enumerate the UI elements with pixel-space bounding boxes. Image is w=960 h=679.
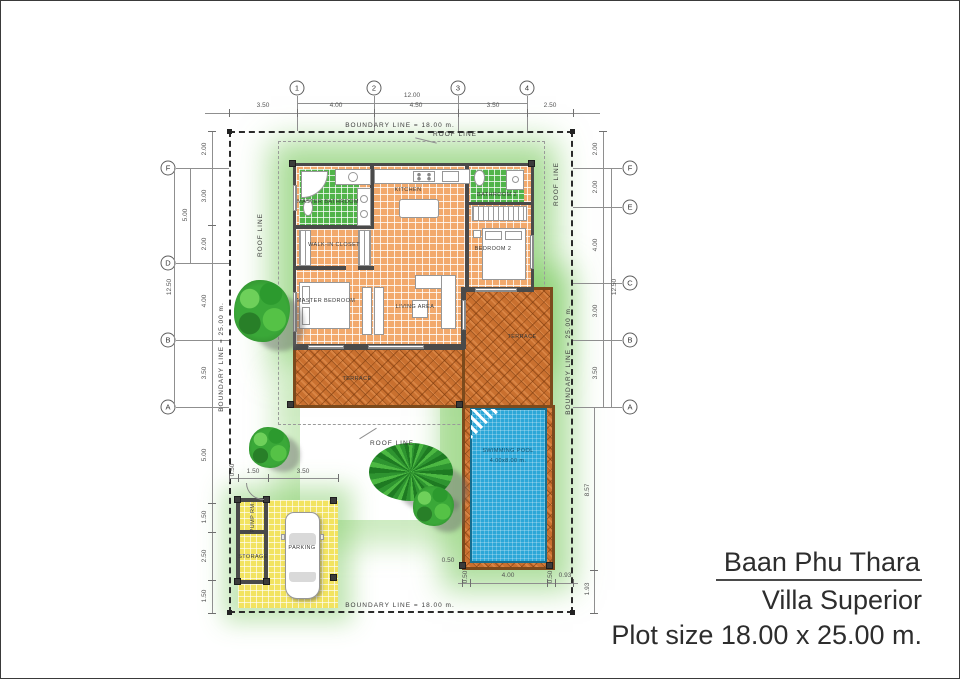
dim-line	[229, 478, 338, 479]
dim-line	[458, 583, 578, 584]
column-post	[287, 401, 294, 408]
title-block: Baan Phu Thara Villa Superior Plot size …	[611, 548, 922, 651]
dim-label: 5.00	[183, 209, 190, 222]
car-windshield	[289, 533, 316, 545]
dim-label: 3.50	[297, 469, 310, 476]
dim-label: 8.57	[585, 484, 592, 497]
window	[530, 235, 534, 269]
sofa	[441, 275, 456, 329]
washbasin-icon	[348, 172, 358, 182]
column-post	[546, 562, 553, 569]
grid-marker-row: A	[623, 400, 638, 415]
stove-icon	[413, 171, 435, 182]
dim-label: 4.50	[410, 103, 423, 110]
bush-tree	[249, 427, 290, 468]
window	[368, 345, 424, 349]
room-label-terrace-main: TERRACE	[342, 376, 371, 384]
boundary-label-top: BOUNDARY LINE = 18.00 m.	[345, 123, 455, 130]
toilet-icon	[474, 170, 485, 186]
car-rear-window	[289, 572, 316, 582]
grid-marker-col: 1	[290, 81, 305, 96]
column-post	[330, 497, 337, 504]
dim-line	[603, 131, 604, 407]
dim-label: 2.00	[202, 238, 209, 251]
dim-label: 1.93	[585, 583, 592, 596]
dim-label: 0.93	[559, 573, 572, 580]
column-post	[528, 160, 535, 167]
dim-label: 1.50	[202, 590, 209, 603]
room-label-bedroom2: BEDROOM 2	[475, 246, 512, 254]
room-label-living-area: LIVING AREA	[396, 304, 435, 312]
pool-label: SWIMMING POOL	[482, 448, 533, 456]
dim-line	[205, 113, 600, 114]
wardrobe	[472, 206, 527, 221]
plot-size: Plot size 18.00 x 25.00 m.	[611, 620, 922, 651]
boundary-corner	[570, 129, 575, 134]
dim-label: 4.00	[330, 103, 343, 110]
pillow	[505, 231, 522, 240]
boundary-corner	[227, 129, 232, 134]
dim-line	[174, 168, 175, 407]
bush-tree	[413, 486, 454, 526]
kitchen-sink-icon	[442, 171, 459, 182]
dim-label: 2.00	[202, 143, 209, 156]
room-label-master-bathroom: MASTER BATHROOM	[297, 199, 359, 207]
column-post	[289, 160, 296, 167]
wall	[465, 166, 469, 292]
boundary-label-right: BOUNDARY LINE = 25.00 m.	[566, 305, 573, 415]
wall	[236, 498, 240, 584]
wall	[469, 202, 531, 205]
dim-label: 2.00	[593, 181, 600, 194]
dim-label: 3.50	[487, 103, 500, 110]
column-post	[263, 578, 270, 585]
column-post	[459, 562, 466, 569]
nightstand	[473, 230, 481, 238]
dim-label: 0.50	[230, 464, 237, 477]
dim-label: 12.50	[612, 279, 619, 295]
window	[308, 345, 344, 349]
dim-label: 5.00	[202, 449, 209, 462]
roof-line-label-left: ROOF LINE	[258, 213, 265, 257]
kitchen-island	[399, 199, 439, 218]
dim-label: 1.50	[247, 469, 260, 476]
roof-line-label-top: ROOF LINE	[433, 132, 477, 139]
wall	[296, 266, 346, 270]
pillow	[485, 231, 502, 240]
boundary-label-bottom: BOUNDARY LINE = 18.00 m.	[345, 603, 455, 610]
dim-line	[212, 131, 213, 613]
sink-icon	[360, 195, 368, 203]
dim-line	[594, 407, 595, 613]
wall	[264, 498, 268, 584]
pool-size-label: 4.00x8.00 m.	[490, 458, 527, 466]
dim-label: 4.00	[593, 239, 600, 252]
boundary-label-left: BOUNDARY LINE = 25.00 m.	[219, 302, 226, 412]
dim-label: 2.50	[544, 103, 557, 110]
room-label-bathroom2: BATHROOM 2	[477, 192, 517, 200]
room-label-walk-in-closet: WALK-IN CLOSET	[308, 242, 360, 250]
window	[293, 185, 297, 211]
grid-marker-col: 3	[451, 81, 466, 96]
bush-tree	[234, 280, 290, 342]
dim-label: 3.50	[202, 367, 209, 380]
dim-label: 3.00	[593, 305, 600, 318]
room-label-terrace-side: TERRACE	[507, 334, 536, 342]
grid-marker-col: 4	[520, 81, 535, 96]
project-name: Baan Phu Thara	[716, 548, 922, 581]
grid-marker-row: F	[623, 161, 638, 176]
room-label-pump-room: PUMP RM.	[250, 502, 258, 533]
dim-label: 3.00	[202, 190, 209, 203]
column-post	[234, 496, 241, 503]
grid-marker-row: C	[623, 276, 638, 291]
villa-model: Villa Superior	[611, 585, 922, 616]
column-post	[263, 496, 270, 503]
dim-label: 0.50	[548, 571, 555, 584]
boundary-corner	[570, 610, 575, 615]
floor-plan-canvas: 1 2 3 4 12.00 3.50 4.00 4.50 3.50 2.50 F…	[0, 0, 960, 679]
column-post	[234, 578, 241, 585]
column-post	[330, 574, 337, 581]
grid-marker-col: 2	[367, 81, 382, 96]
swimming-pool	[470, 408, 547, 563]
sink-icon	[360, 210, 368, 218]
shower-drain-icon	[512, 176, 519, 183]
car-mirror	[281, 534, 285, 540]
roof-line-label-bottom: ROOF LINE	[370, 441, 414, 448]
dim-label: 2.50	[202, 550, 209, 563]
room-label-kitchen: KITCHEN	[395, 187, 422, 195]
dim-label: 0.50	[463, 571, 470, 584]
sliding-door	[462, 300, 466, 330]
grid-marker-row: B	[623, 333, 638, 348]
room-label-master-bedroom: MASTER BEDROOM	[297, 298, 355, 306]
dim-label: 2.00	[593, 143, 600, 156]
terrace-main	[293, 347, 465, 408]
boundary-corner	[227, 610, 232, 615]
dim-label: 1.50	[202, 511, 209, 524]
dim-label: 12.00	[404, 93, 420, 100]
dim-label: 4.00	[502, 573, 515, 580]
tv-cabinet	[362, 287, 372, 335]
vanity	[357, 188, 371, 226]
room-label-parking: PARKING	[288, 545, 315, 553]
dim-label: 4.00	[202, 295, 209, 308]
roof-line-label-right: ROOF LINE	[554, 162, 561, 206]
tv-cabinet	[374, 287, 384, 335]
sofa	[415, 275, 443, 289]
terrace-side	[462, 287, 553, 408]
dim-label: 12.50	[167, 279, 174, 295]
car-mirror	[320, 534, 324, 540]
dim-label: 3.50	[257, 103, 270, 110]
wall	[358, 266, 374, 270]
dim-line	[190, 168, 191, 263]
room-label-storage: STORAGE	[238, 554, 268, 562]
window	[475, 288, 517, 292]
car	[285, 512, 320, 599]
dim-label: 0.50	[442, 558, 455, 565]
column-post	[456, 401, 463, 408]
grid-marker-row: E	[623, 200, 638, 215]
dim-label: 3.50	[593, 367, 600, 380]
